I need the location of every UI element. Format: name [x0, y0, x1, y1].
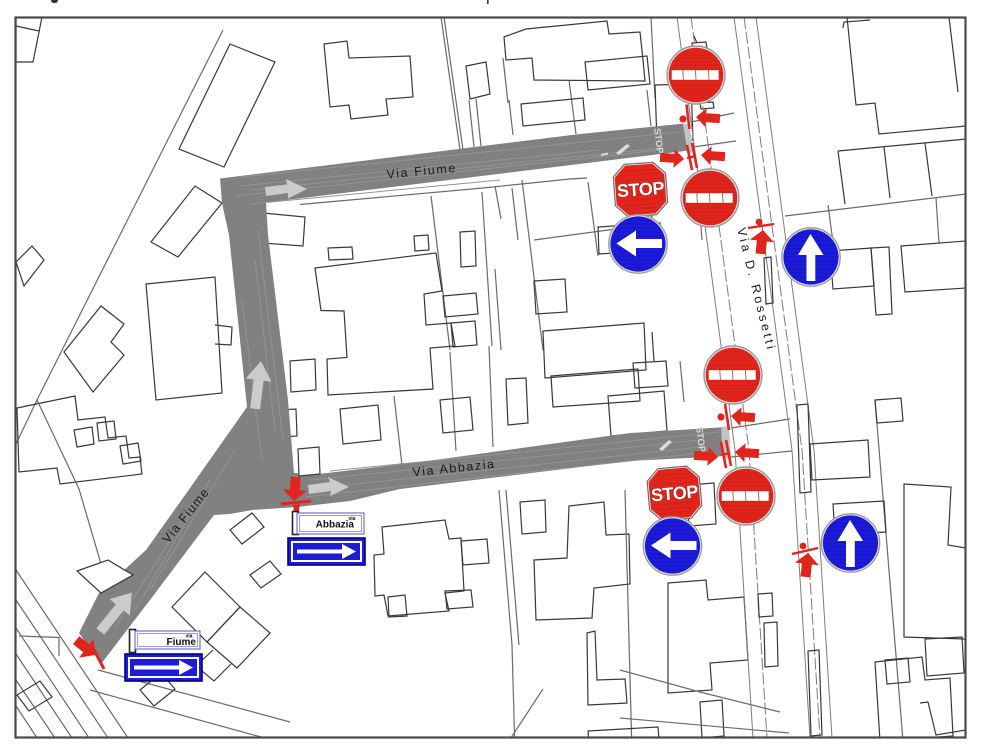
svg-text:via: via	[186, 634, 193, 640]
svg-text:via: via	[349, 516, 356, 522]
